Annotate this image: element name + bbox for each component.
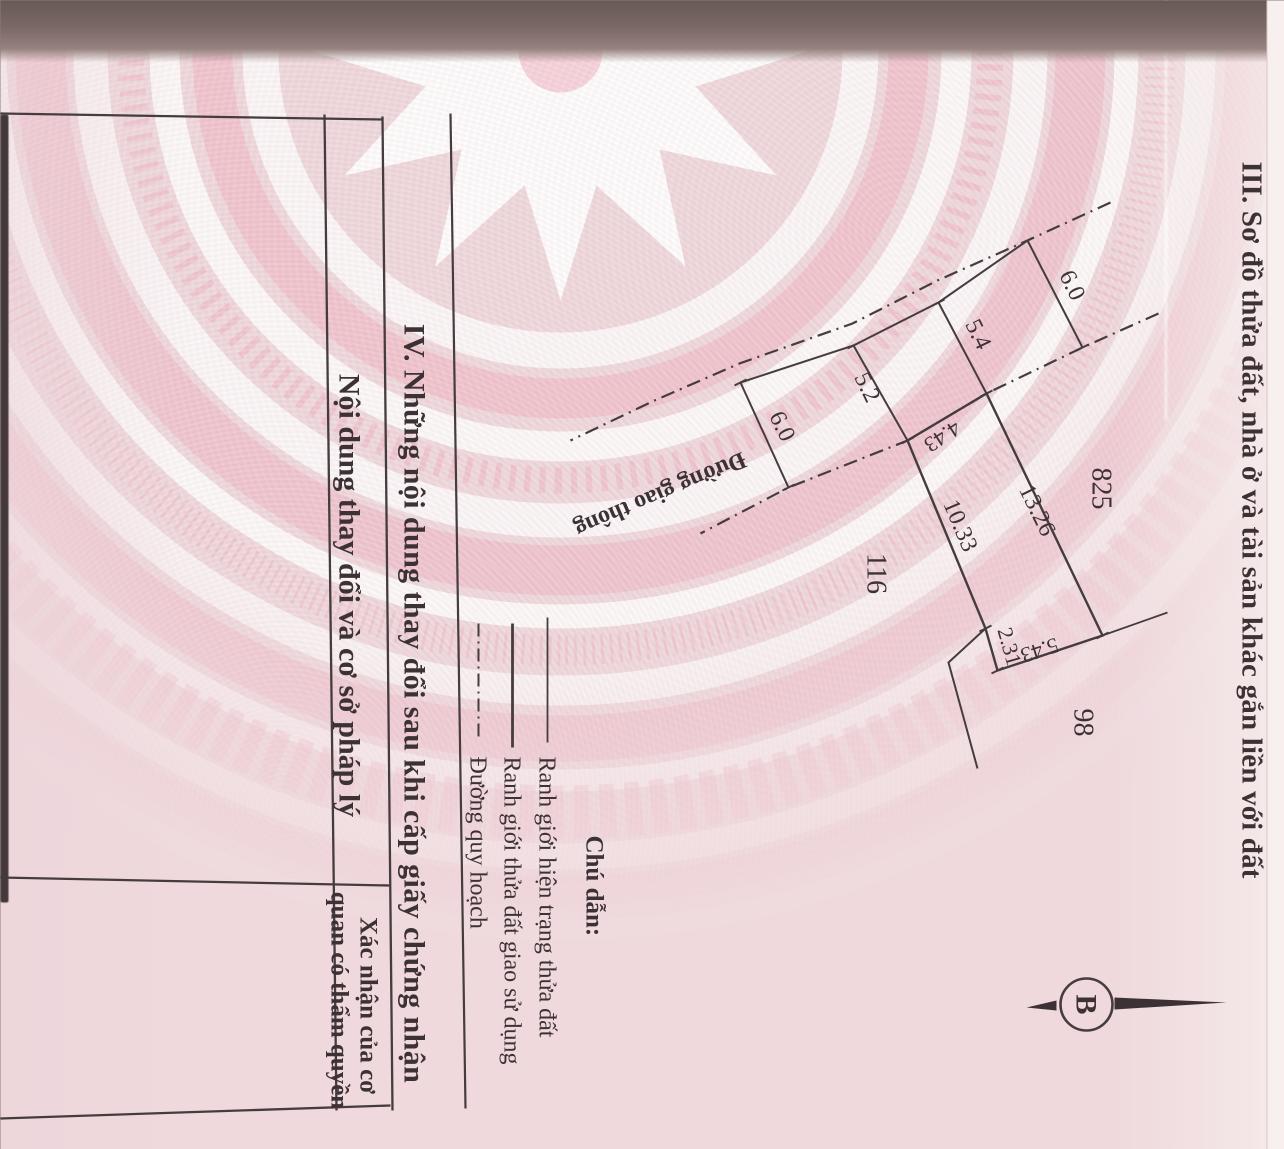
parcel-number-lower: 116 (860, 553, 891, 594)
dim-front: 4.43 (919, 415, 965, 457)
table-col2-header-line2: quan có thẩm quyền (325, 891, 352, 1109)
compass-tail-icon (1026, 1000, 1056, 1010)
dim-tick3: 5.2 (848, 368, 885, 406)
neighbour-boundary (948, 628, 985, 768)
certificate-page: III. Sơ đồ thửa đất, nhà ở và tài sản kh… (0, 0, 1284, 1149)
legend-label-1: Ranh giới hiện trạng thửa đất (533, 756, 559, 1037)
compass-needle-icon (1114, 997, 1226, 1009)
legend-label-2: Ranh giới thửa đất giao sử dụng (498, 756, 524, 1064)
page-fold-shadow (0, 0, 1284, 62)
legend: Chú dẫn: Ranh giới hiện trạng thửa đất R… (464, 617, 607, 1064)
parcel-number-right: 98 (1067, 708, 1098, 736)
road-label: Đường giao thông (570, 446, 749, 542)
dim-tick4: 6.0 (763, 407, 800, 445)
paper-crease (1164, 0, 1167, 420)
dimension-end-caps (734, 237, 1108, 673)
table-col2-header-line1: Xác nhận của cơ (354, 916, 381, 1093)
photo-frame: III. Sơ đồ thửa đất, nhà ở và tài sản kh… (0, 0, 1284, 1149)
parcel-number-upper: 825 (1085, 467, 1116, 509)
scan-edge-shadow (0, 114, 8, 902)
table-column-divider (0, 877, 389, 885)
printed-content: III. Sơ đồ thửa đất, nhà ở và tài sản kh… (0, 0, 1284, 1149)
dim-tick1: 6.0 (1053, 266, 1090, 304)
road-edge-line (740, 240, 1027, 382)
section4-title: IV. Những nội dung thay đổi sau khi cấp … (397, 323, 430, 1082)
dim-side-left: 13.26 (1013, 480, 1060, 540)
page-edge (1266, 0, 1284, 1149)
planning-line-near (570, 202, 1110, 440)
dim-back2: 5.43 (1017, 632, 1061, 668)
legend-title: Chú dẫn: (580, 835, 607, 936)
section-divider-line (450, 113, 465, 1108)
north-compass: B (1026, 978, 1226, 1030)
compass-letter: B (1069, 994, 1102, 1014)
table-top-border (382, 116, 392, 1110)
dim-tick2: 5.4 (959, 315, 996, 353)
back-boundary-extension (1102, 612, 1167, 635)
legend-label-3: Đường quy hoạch (464, 756, 490, 928)
table-col1-header: Nội dung thay đổi và cơ sở pháp lý (332, 373, 365, 816)
section3-title: III. Sơ đồ thửa đất, nhà ở và tài sản kh… (1235, 161, 1267, 878)
